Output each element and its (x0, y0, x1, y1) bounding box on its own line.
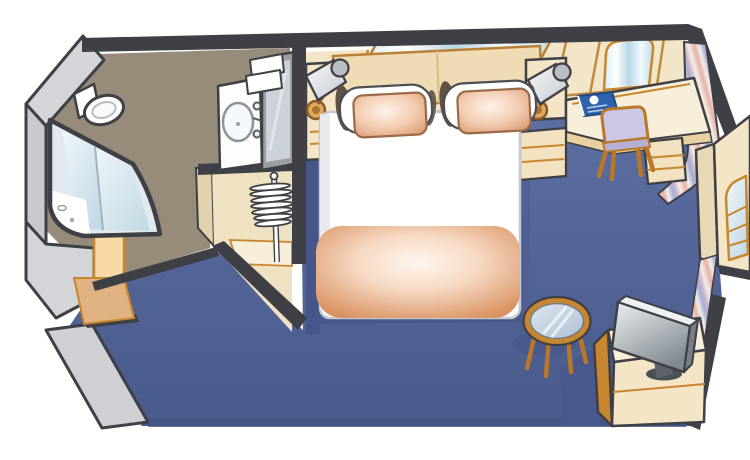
queen-bed (316, 80, 538, 318)
floor-plan-illustration (0, 0, 750, 460)
stateroom-floor-plan (0, 0, 750, 460)
brochure-logo (590, 96, 599, 105)
towels (246, 54, 284, 94)
bathroom-outer-wall-side (26, 104, 46, 244)
bathroom-bedroom-wall (292, 37, 306, 264)
wardrobe-mirror (726, 176, 748, 260)
desk-drawers-left (520, 128, 566, 180)
desk-mirror (604, 39, 653, 90)
foot-blanket (316, 226, 520, 318)
